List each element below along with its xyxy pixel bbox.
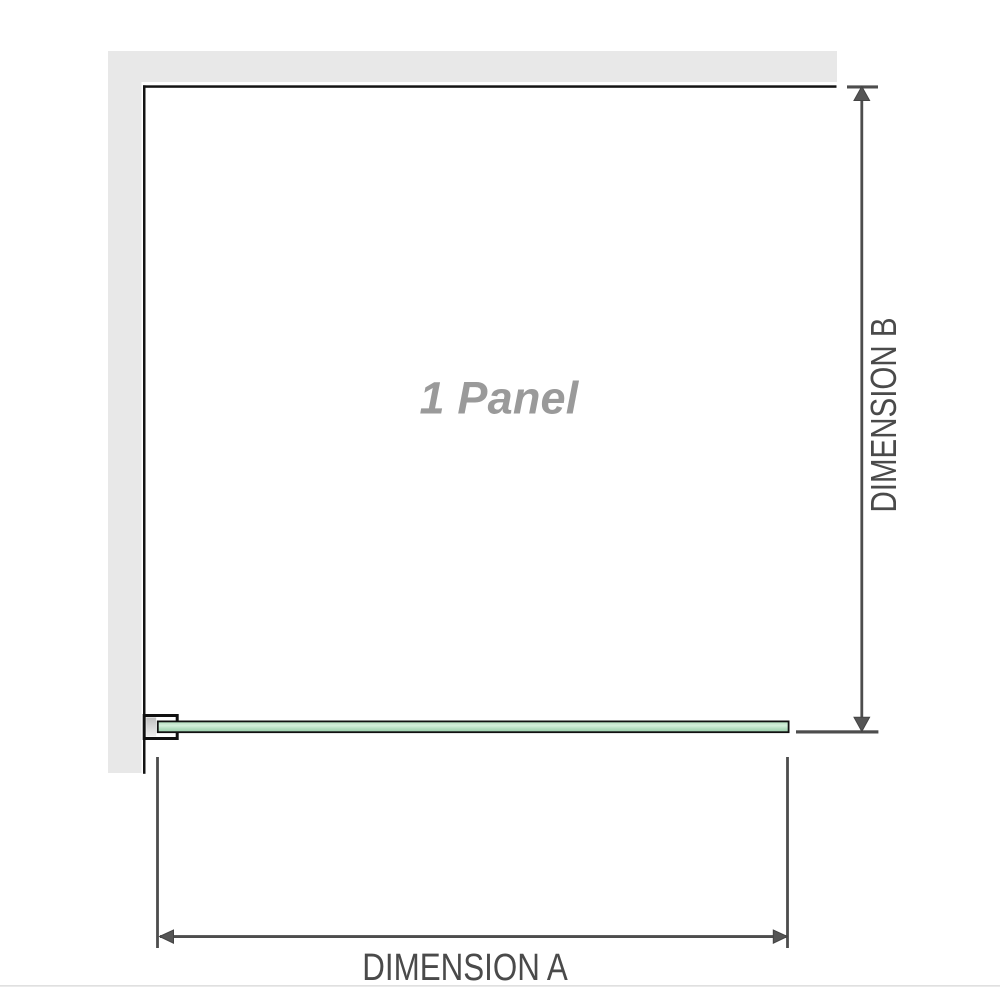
svg-text:DIMENSION A: DIMENSION A [362, 946, 568, 989]
svg-text:DIMENSION B: DIMENSION B [863, 317, 903, 512]
svg-text:1 Panel: 1 Panel [420, 373, 580, 424]
